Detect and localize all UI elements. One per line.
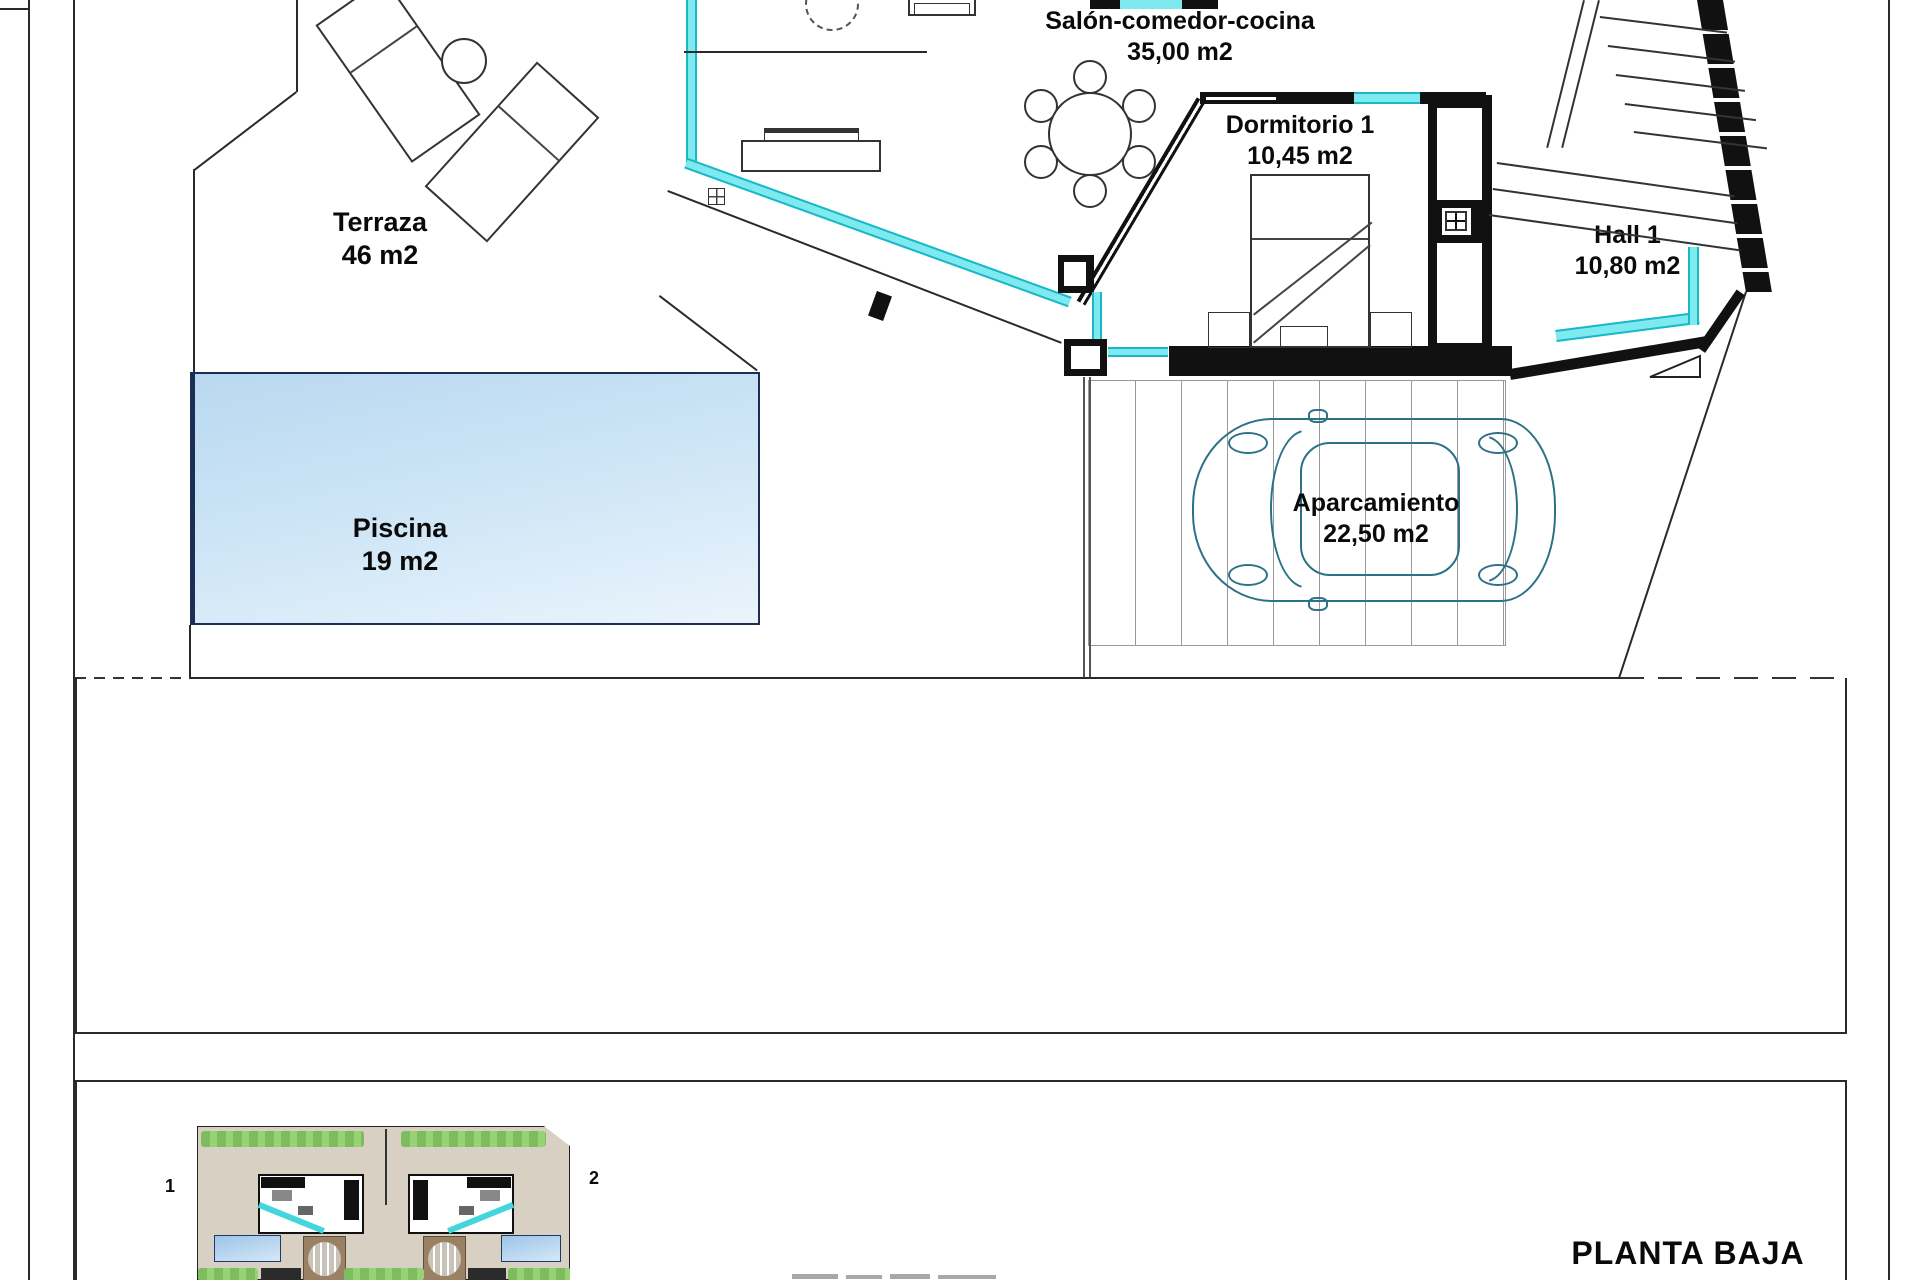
site-plan (197, 1126, 570, 1280)
hall-corner-wall (1697, 290, 1745, 353)
kitchen-cabinet (908, 0, 976, 16)
stair-step-long (1497, 162, 1735, 197)
site-car-roof (428, 1242, 461, 1276)
room-label-terraza: Terraza 46 m2 (240, 206, 520, 272)
room-label-piscina: Piscina 19 m2 (260, 512, 540, 578)
page-corner-tick (0, 8, 28, 10)
site-villa-unit (408, 1174, 514, 1234)
car-wheel (1228, 564, 1268, 586)
sheet-title: PLANTA BAJA (1528, 1234, 1848, 1273)
car-mirror (1308, 409, 1328, 423)
page-border-outer-left (28, 0, 30, 1280)
terrace-door-jamb (868, 291, 892, 321)
bedroom-bottom-wall (1169, 346, 1512, 376)
bedroom-side-window (1092, 292, 1102, 340)
room-label-aparcamiento: Aparcamiento 22,50 m2 (1216, 488, 1536, 549)
car-wheel (1228, 432, 1268, 454)
cutoff-text-fragment (938, 1275, 996, 1279)
plot-boundary-chamfer (194, 91, 297, 170)
pool (190, 372, 760, 625)
site-unit-label-1: 1 (160, 1176, 180, 1198)
dining-table (1048, 92, 1132, 176)
villa-wall-block (413, 1180, 428, 1220)
glazed-wall-vertical (686, 0, 697, 166)
site-lower-structure (261, 1268, 301, 1280)
car-mirror (1308, 597, 1328, 611)
villa-furniture (298, 1206, 313, 1215)
glazing-end-jamb (1058, 255, 1094, 293)
kitchen-counter-line (684, 51, 927, 53)
kitchen-chair-arc (805, 0, 859, 31)
wardrobe-window-box (1442, 208, 1471, 235)
wall-core (1206, 97, 1276, 100)
glazed-wall-diagonal (684, 158, 1071, 307)
lounger-fold-line (350, 26, 417, 74)
room-name: Dormitorio 1 (1226, 111, 1375, 139)
bedside-table (1208, 312, 1250, 348)
wardrobe-shelf-upper (1437, 108, 1482, 200)
bed-footboard (1280, 326, 1328, 348)
page-border-right (1888, 0, 1890, 1280)
post-core (1071, 346, 1100, 369)
cutoff-text-fragment (792, 1274, 838, 1279)
lower-frame (75, 678, 1847, 1034)
pool-left-coping (190, 372, 195, 625)
room-name: Piscina (353, 513, 448, 543)
villa-wall-block (344, 1180, 359, 1220)
site-unit-label-2: 2 (584, 1168, 604, 1190)
floor-plan-sheet: Piscina 19 m2 Terraza 46 m2 Salón-comedo… (0, 0, 1920, 1280)
site-hedge (201, 1131, 364, 1147)
jamb-core (1064, 262, 1086, 286)
window-symbol (1445, 211, 1467, 231)
room-name: Terraza (333, 207, 427, 237)
bed (1250, 174, 1370, 348)
bedroom-corner-post (1064, 339, 1107, 376)
site-hedge (401, 1131, 546, 1147)
wardrobe-shelf-lower (1437, 243, 1482, 343)
site-divider-line (385, 1129, 387, 1205)
cutoff-text-fragment (846, 1275, 882, 1279)
entrance-door-glazing (1555, 312, 1699, 342)
site-pergola (303, 1236, 346, 1280)
bedside-table (1370, 312, 1412, 348)
cutoff-text-fragment (890, 1274, 930, 1279)
room-label-hall: Hall 1 10,80 m2 (1490, 220, 1765, 281)
room-label-dormitorio: Dormitorio 1 10,45 m2 (1160, 110, 1440, 171)
sideboard (741, 140, 881, 172)
villa-glazing (258, 1202, 325, 1234)
room-name: Aparcamiento (1293, 489, 1460, 517)
floor-drain-symbol (708, 188, 725, 205)
villa-glazing (447, 1202, 514, 1234)
dining-chair (1073, 174, 1107, 208)
plot-boundary-left (193, 169, 195, 373)
room-area: 10,45 m2 (1247, 142, 1353, 170)
site-pool (501, 1235, 561, 1262)
lounger-fold-line (499, 106, 560, 161)
unit-number: 2 (589, 1168, 599, 1188)
villa-furniture (480, 1190, 500, 1201)
stair-stringer (1561, 0, 1600, 148)
terrace-side-table (441, 38, 487, 84)
stair-step (1634, 131, 1767, 149)
sideboard-shelf (764, 128, 859, 141)
car-wheel (1478, 564, 1518, 586)
room-area: 10,80 m2 (1575, 252, 1681, 280)
room-area: 19 m2 (362, 546, 439, 576)
site-hedge (344, 1268, 424, 1280)
site-pool (214, 1235, 281, 1262)
site-villa-unit (258, 1174, 364, 1234)
site-car-roof (308, 1242, 341, 1276)
site-hedge (198, 1268, 258, 1280)
bedroom-top-window (1354, 92, 1420, 104)
villa-furniture (459, 1206, 474, 1215)
room-area: 35,00 m2 (1127, 38, 1233, 66)
room-area: 22,50 m2 (1323, 520, 1429, 548)
villa-furniture (272, 1190, 292, 1201)
kitchen-cabinet-inner (914, 3, 970, 15)
terrace-edge-line (667, 190, 1061, 343)
site-lower-structure (468, 1268, 506, 1280)
plot-boundary-left-lower (189, 625, 191, 679)
site-pergola (423, 1236, 466, 1280)
bedroom-bottom-window (1108, 347, 1168, 357)
villa-wall-block (467, 1177, 511, 1188)
room-name: Salón-comedor-cocina (1045, 7, 1315, 35)
room-area: 46 m2 (342, 240, 419, 270)
terrace-path-line (659, 295, 758, 371)
entrance-arrow (1649, 353, 1701, 378)
site-hedge (508, 1268, 571, 1280)
room-label-salon: Salón-comedor-cocina 35,00 m2 (1010, 6, 1350, 67)
car-wheel (1478, 432, 1518, 454)
plot-boundary-left-top (296, 0, 298, 92)
parking-edge-line (1083, 377, 1085, 677)
unit-number: 1 (165, 1176, 175, 1196)
villa-wall-block (261, 1177, 305, 1188)
parking-edge-line (1089, 377, 1091, 677)
